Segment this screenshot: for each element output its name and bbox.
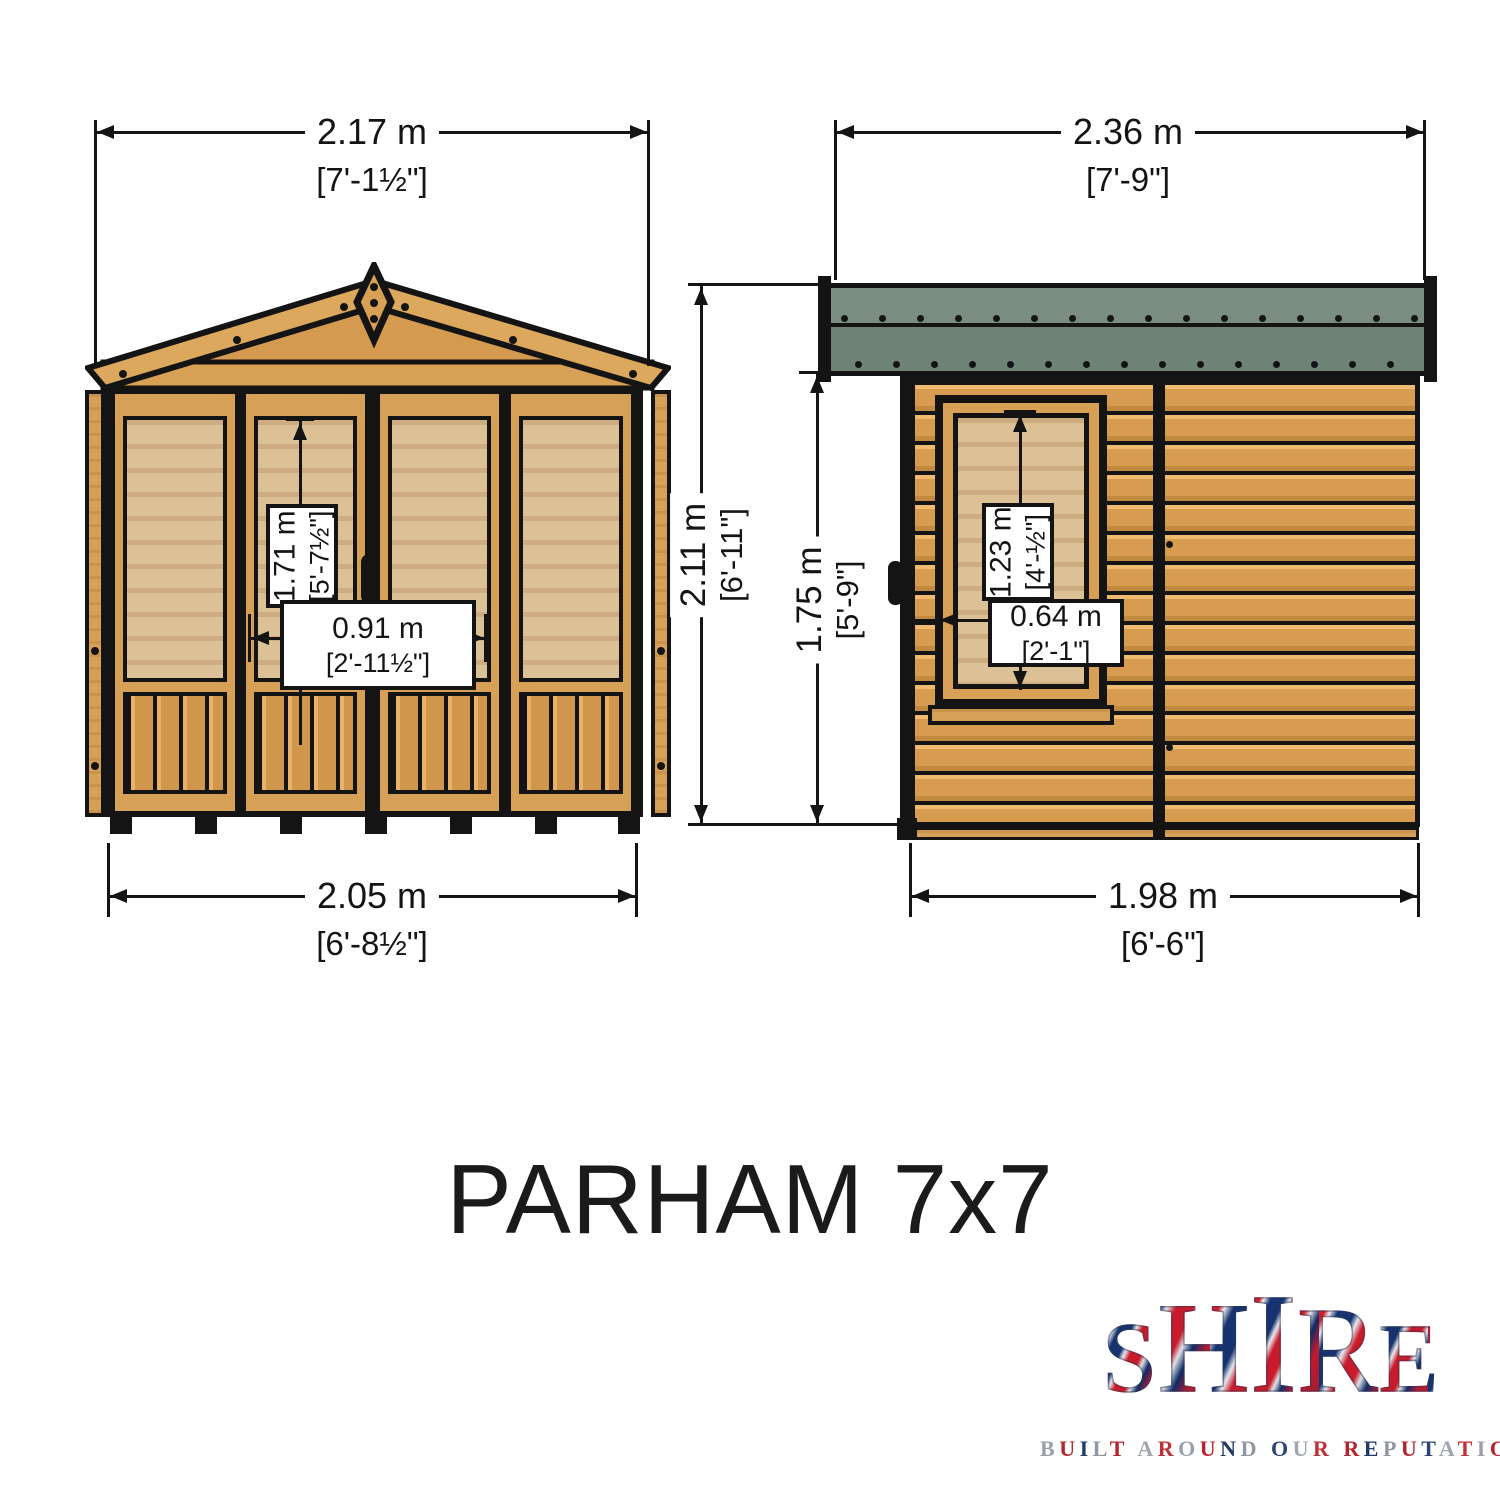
roof-nail-dot <box>1045 361 1052 368</box>
front-door-width-label: 0.91 m [2'-11½"] <box>280 600 476 690</box>
side-front-corner-frame <box>900 376 915 827</box>
door-handle <box>361 554 377 604</box>
front-window-right <box>511 394 631 811</box>
roof-nail-dot <box>1107 315 1114 322</box>
side-width-base-metric: 1.98 m <box>1096 875 1230 917</box>
roof-nail-dot <box>1083 361 1090 368</box>
ext-line <box>834 120 837 280</box>
side-width-overall-imperial: [7'-9"] <box>1078 161 1178 199</box>
side-height-ridge-label: 2.11 m [6'-11"] <box>670 493 754 617</box>
roof-nail-dot <box>893 361 900 368</box>
roof-nail-dot <box>1259 315 1266 322</box>
logo-tagline: BUILT AROUND OUR REPUTATION <box>1040 1436 1500 1462</box>
ext-line <box>1423 120 1426 280</box>
side-window-width-label: 0.64 m [2'-1"] <box>988 599 1124 667</box>
skid-foot <box>110 817 132 834</box>
front-elevation <box>85 262 671 837</box>
roof-nail-dot <box>917 315 924 322</box>
roof-nail-dot <box>1411 315 1418 322</box>
ext-line <box>107 843 110 917</box>
roof-nail-dot <box>1311 361 1318 368</box>
roof-nail-dot <box>1007 361 1014 368</box>
front-width-base-imperial: [6'-8½"] <box>308 925 436 963</box>
skid-foot <box>618 817 640 834</box>
side-height-eaves-label: 1.75 m [5'-9"] <box>786 537 870 664</box>
side-return-left <box>85 390 105 817</box>
roof-nail-dot <box>1373 315 1380 322</box>
skid-foot <box>195 817 217 834</box>
skid-foot <box>535 817 557 834</box>
roof-nail-dot <box>1349 361 1356 368</box>
roof-nail-dot <box>969 361 976 368</box>
roof-nail-dot <box>1387 361 1394 368</box>
roof-nail-dot <box>1145 315 1152 322</box>
roof-nail-dot <box>879 315 886 322</box>
skid-foot <box>280 817 302 834</box>
shire-letter: E <box>1378 1310 1438 1408</box>
shire-wordmark: SHIRE <box>1040 1272 1500 1430</box>
shire-logo: SHIRE BUILT AROUND OUR REPUTATION <box>1040 1272 1500 1482</box>
ext-line <box>909 843 912 917</box>
page-title: PARHAM 7x7 <box>0 1143 1500 1256</box>
window-sill <box>928 705 1114 725</box>
skid-foot <box>365 817 387 834</box>
skid-foot <box>450 817 472 834</box>
roof-endcap-right <box>1424 276 1437 382</box>
shire-letter: I <box>1250 1272 1297 1414</box>
ext-line <box>647 120 650 366</box>
ext-line <box>94 120 97 366</box>
roof-nail-dot <box>841 315 848 322</box>
side-wall-divider <box>1153 378 1165 827</box>
shire-letter: H <box>1157 1284 1249 1412</box>
side-corner-foot <box>897 818 917 840</box>
diagram-canvas: 2.17 m [7'-1½"] 2.36 m [7'-9"] 2.11 m [6… <box>0 0 1500 1500</box>
roof-nail-dot <box>1031 315 1038 322</box>
roof-nail-dot <box>1273 361 1280 368</box>
roof-nail-dot <box>1121 361 1128 368</box>
roof-nail-dot <box>1335 315 1342 322</box>
roof-nail-dot <box>1069 315 1076 322</box>
roof-nail-dot <box>993 315 1000 322</box>
ext-line <box>635 843 638 917</box>
roof-nail-dot <box>1221 315 1228 322</box>
front-roof <box>85 262 671 402</box>
front-window-left <box>115 394 235 811</box>
side-width-overall-metric: 2.36 m <box>1061 111 1195 153</box>
roof-nail-dot <box>1159 361 1166 368</box>
side-door-handle <box>888 561 903 605</box>
roof-nail-dot <box>955 315 962 322</box>
side-roof <box>822 283 1434 376</box>
shire-letter: S <box>1102 1308 1158 1408</box>
side-elevation <box>818 276 1438 841</box>
ext-line <box>1417 843 1420 917</box>
roof-nail-dot <box>931 361 938 368</box>
roof-nail-dot <box>1197 361 1204 368</box>
side-return-right <box>651 390 671 817</box>
roof-nail-dot <box>855 361 862 368</box>
front-door-height-label: 1.71 m[5'-7½"] <box>266 504 338 608</box>
roof-nail-dot <box>1183 315 1190 322</box>
front-width-overall-metric: 2.17 m <box>305 111 439 153</box>
roof-nail-dot <box>1297 315 1304 322</box>
shire-letter: R <box>1297 1290 1378 1412</box>
roof-endcap-left <box>818 276 831 382</box>
side-window-height-label: 1.23 m[4'-½"] <box>982 503 1054 601</box>
front-width-overall-imperial: [7'-1½"] <box>308 161 436 199</box>
roof-nail-dot <box>1235 361 1242 368</box>
side-width-base-imperial: [6'-6"] <box>1113 925 1213 963</box>
front-width-base-metric: 2.05 m <box>305 875 439 917</box>
